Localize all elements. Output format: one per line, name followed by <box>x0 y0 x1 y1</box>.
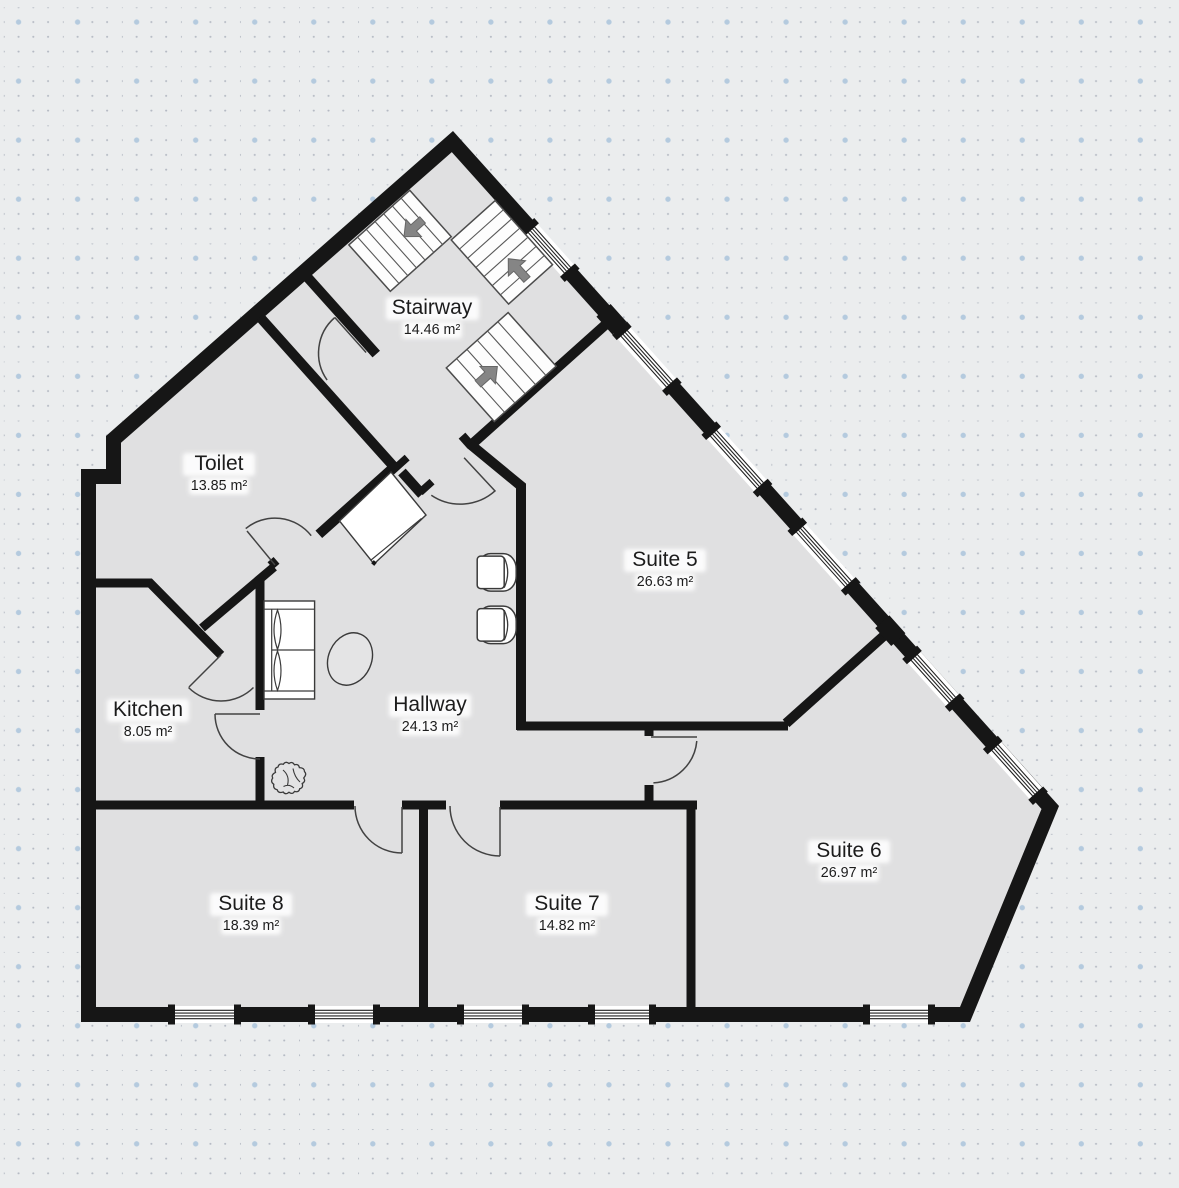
svg-text:Stairway: Stairway <box>392 296 473 319</box>
svg-text:18.39 m²: 18.39 m² <box>223 918 280 934</box>
svg-text:Suite 6: Suite 6 <box>816 839 881 862</box>
svg-text:13.85 m²: 13.85 m² <box>191 478 248 494</box>
svg-text:26.63 m²: 26.63 m² <box>637 574 694 590</box>
svg-text:8.05 m²: 8.05 m² <box>124 724 173 740</box>
svg-text:Suite 5: Suite 5 <box>632 548 697 571</box>
svg-text:14.82 m²: 14.82 m² <box>539 918 596 934</box>
svg-text:24.13 m²: 24.13 m² <box>402 719 459 735</box>
svg-text:14.46 m²: 14.46 m² <box>404 322 461 338</box>
svg-text:Suite 8: Suite 8 <box>218 892 283 915</box>
svg-text:Suite 7: Suite 7 <box>534 892 599 915</box>
svg-text:26.97 m²: 26.97 m² <box>821 865 878 881</box>
svg-text:Hallway: Hallway <box>393 693 467 716</box>
svg-text:Kitchen: Kitchen <box>113 698 183 721</box>
svg-text:Toilet: Toilet <box>194 452 243 475</box>
